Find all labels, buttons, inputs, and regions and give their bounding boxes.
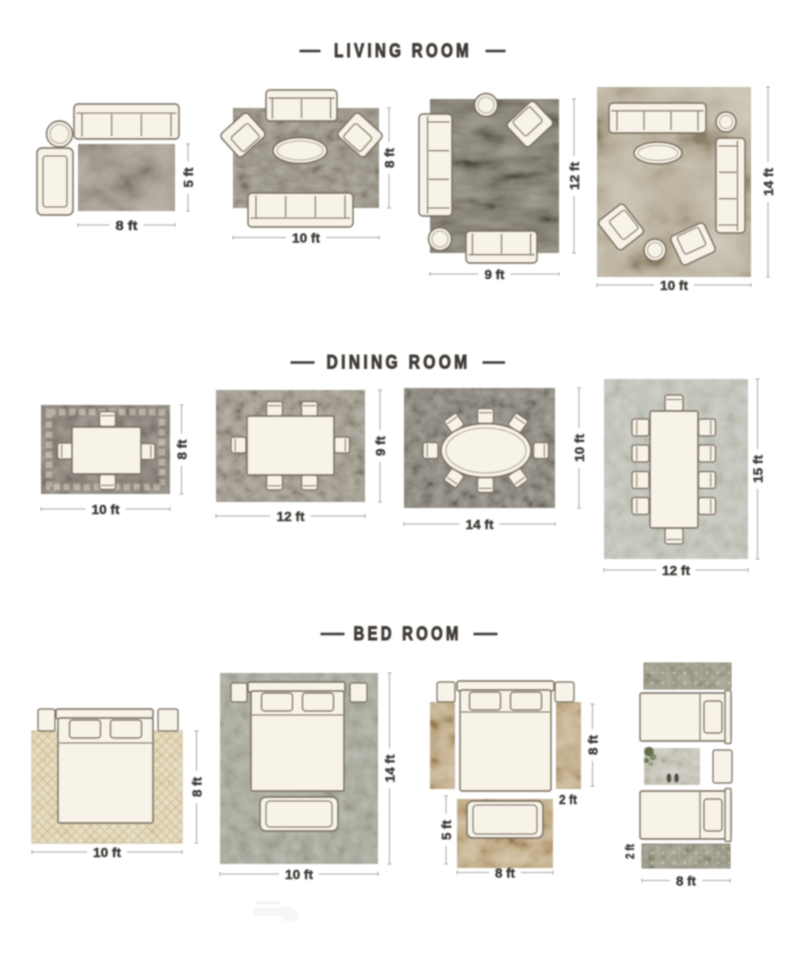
svg-text:14 ft: 14 ft bbox=[382, 754, 397, 783]
svg-text:10 ft: 10 ft bbox=[92, 502, 121, 517]
svg-text:5 ft: 5 ft bbox=[181, 167, 196, 188]
svg-text:DINING ROOM: DINING ROOM bbox=[327, 353, 471, 374]
svg-text:10 ft: 10 ft bbox=[572, 433, 587, 462]
svg-text:10 ft: 10 ft bbox=[660, 278, 689, 293]
svg-text:10 ft: 10 ft bbox=[93, 845, 122, 860]
svg-text:14 ft: 14 ft bbox=[466, 517, 495, 532]
svg-text:2 ft: 2 ft bbox=[623, 844, 637, 859]
svg-text:15 ft: 15 ft bbox=[750, 454, 765, 483]
svg-text:8 ft: 8 ft bbox=[676, 873, 697, 888]
svg-text:10 ft: 10 ft bbox=[292, 230, 321, 245]
svg-text:5 ft: 5 ft bbox=[439, 819, 454, 840]
svg-text:9 ft: 9 ft bbox=[373, 435, 388, 456]
svg-text:12 ft: 12 ft bbox=[662, 563, 691, 578]
svg-text:8 ft: 8 ft bbox=[495, 865, 516, 880]
svg-text:8 ft: 8 ft bbox=[585, 734, 600, 755]
svg-text:LIVING ROOM: LIVING ROOM bbox=[334, 41, 472, 62]
svg-text:8 ft: 8 ft bbox=[174, 439, 189, 460]
svg-text:8 ft: 8 ft bbox=[116, 218, 139, 233]
svg-text:10 ft: 10 ft bbox=[285, 867, 314, 882]
svg-text:9 ft: 9 ft bbox=[485, 267, 506, 282]
svg-text:12 ft: 12 ft bbox=[277, 509, 306, 524]
svg-text:8 ft: 8 ft bbox=[189, 776, 204, 797]
svg-text:12 ft: 12 ft bbox=[567, 161, 582, 190]
svg-text:14 ft: 14 ft bbox=[761, 167, 776, 196]
svg-text:2 ft: 2 ft bbox=[559, 792, 578, 807]
svg-text:BED ROOM: BED ROOM bbox=[354, 624, 462, 645]
svg-text:8 ft: 8 ft bbox=[382, 147, 397, 168]
